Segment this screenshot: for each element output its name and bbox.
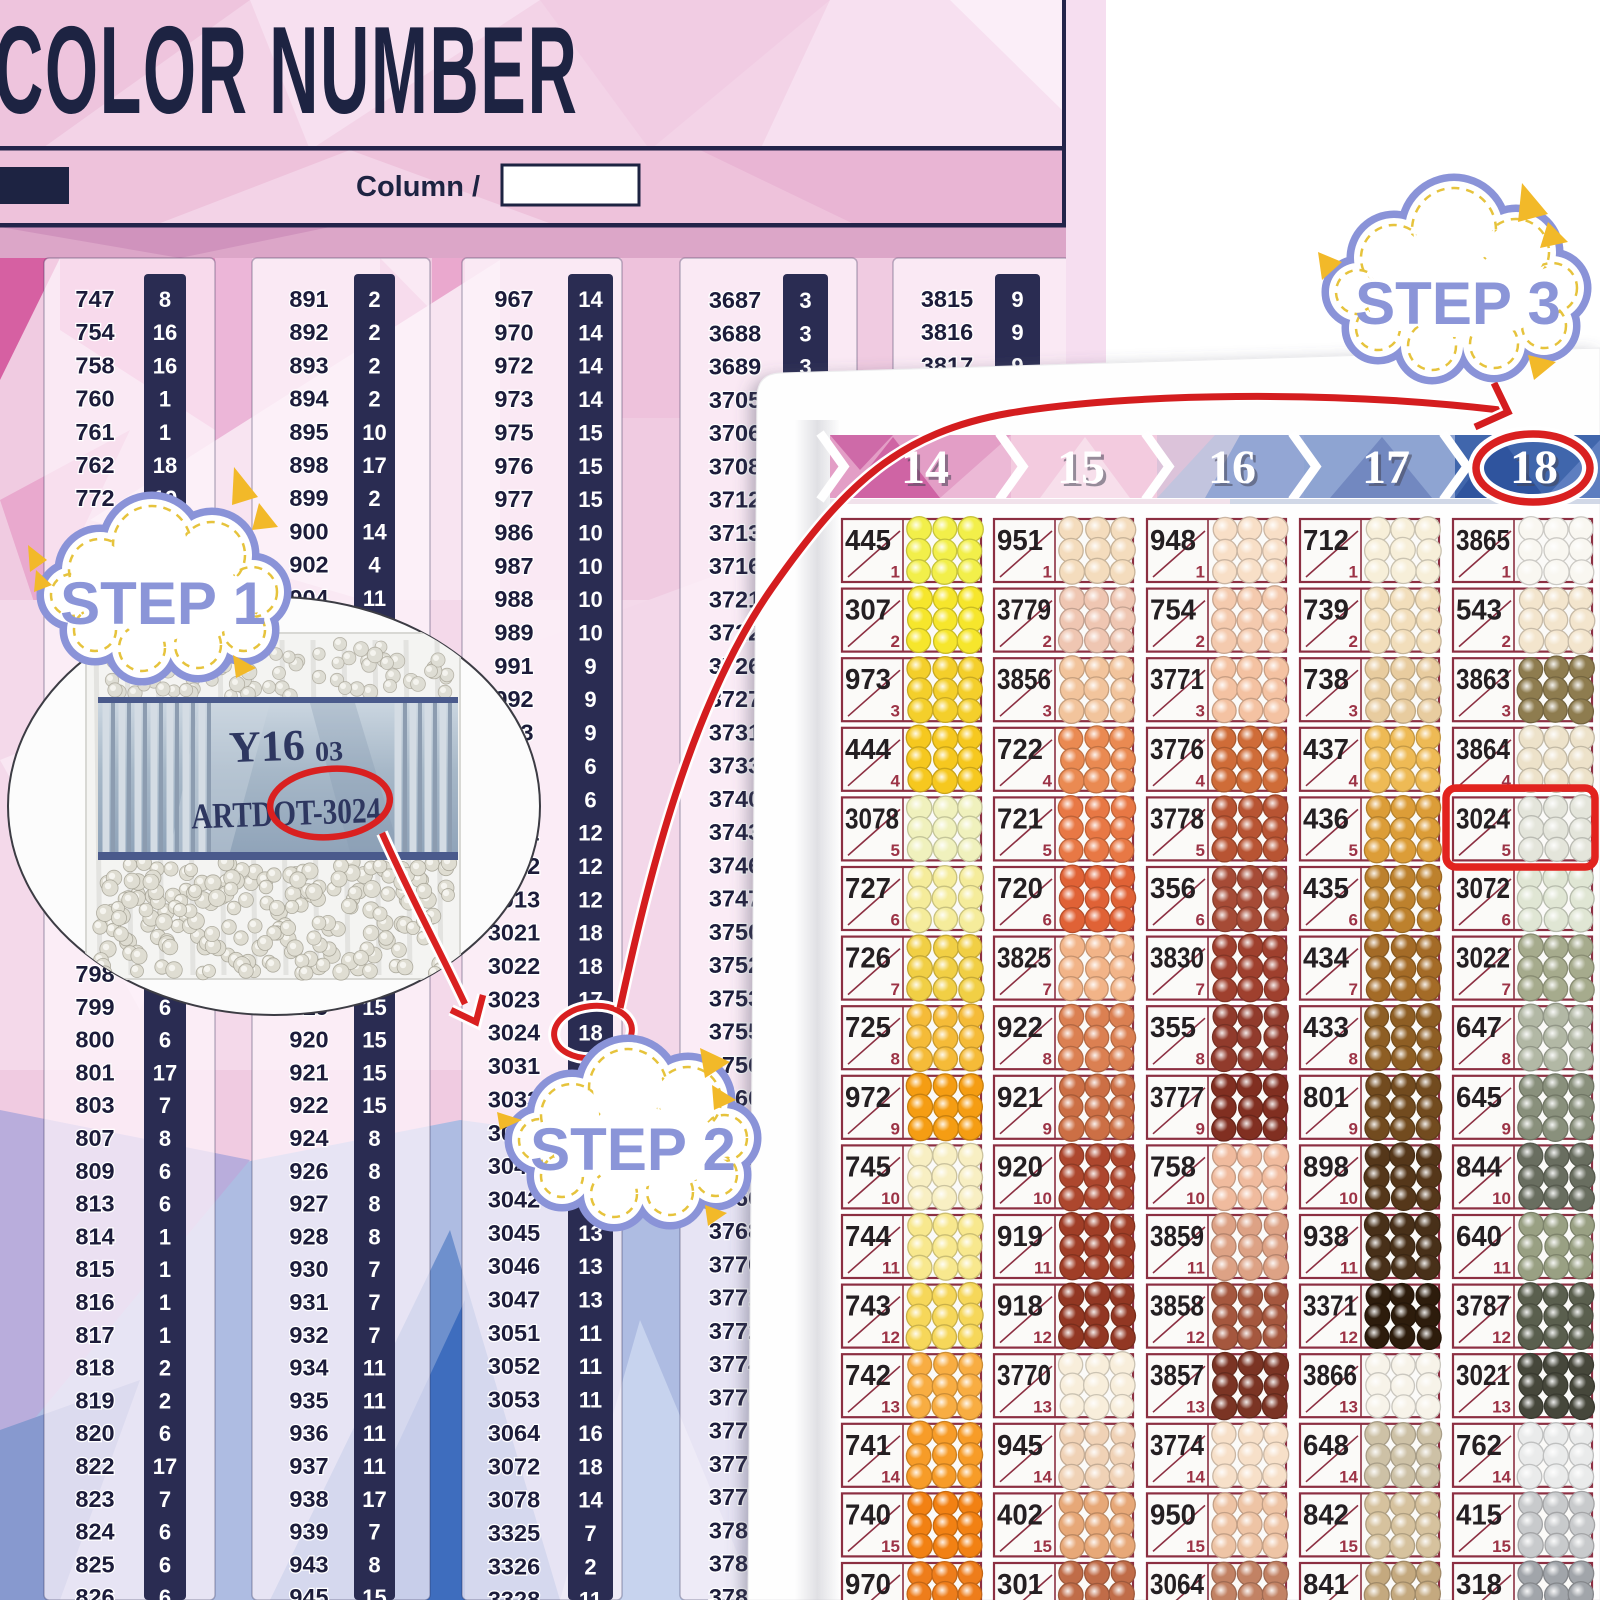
svg-text:17: 17 xyxy=(153,1060,177,1085)
svg-text:819: 819 xyxy=(75,1387,114,1413)
svg-text:18: 18 xyxy=(578,954,602,979)
svg-text:3776: 3776 xyxy=(1150,734,1204,766)
svg-text:2: 2 xyxy=(1196,632,1205,651)
svg-text:822: 822 xyxy=(75,1453,114,1479)
svg-text:6: 6 xyxy=(1502,911,1511,930)
svg-text:2: 2 xyxy=(159,1356,171,1381)
svg-text:800: 800 xyxy=(75,1027,114,1053)
svg-text:841: 841 xyxy=(1303,1569,1349,1600)
svg-text:647: 647 xyxy=(1456,1012,1502,1044)
svg-text:772: 772 xyxy=(75,485,114,511)
svg-text:814: 814 xyxy=(75,1223,114,1249)
svg-text:14: 14 xyxy=(578,354,603,379)
svg-text:3078: 3078 xyxy=(488,1487,540,1513)
svg-text:927: 927 xyxy=(289,1191,328,1217)
svg-text:437: 437 xyxy=(1303,734,1349,766)
svg-text:3771: 3771 xyxy=(1150,664,1204,696)
svg-text:3325: 3325 xyxy=(488,1520,540,1546)
svg-text:817: 817 xyxy=(75,1322,114,1348)
svg-text:3777: 3777 xyxy=(1150,1082,1204,1114)
svg-text:9: 9 xyxy=(584,721,596,746)
svg-text:816: 816 xyxy=(75,1289,114,1315)
svg-text:17: 17 xyxy=(153,1454,177,1479)
svg-text:892: 892 xyxy=(289,319,328,345)
svg-text:9: 9 xyxy=(1011,287,1023,312)
svg-text:6: 6 xyxy=(159,1552,171,1577)
svg-text:3: 3 xyxy=(1196,702,1205,721)
svg-text:3816: 3816 xyxy=(921,319,973,345)
svg-text:14: 14 xyxy=(578,387,603,412)
svg-text:2: 2 xyxy=(1502,632,1511,651)
svg-text:919: 919 xyxy=(997,1221,1043,1253)
svg-text:3022: 3022 xyxy=(1456,943,1510,975)
svg-text:9: 9 xyxy=(584,654,596,679)
svg-text:18: 18 xyxy=(578,921,602,946)
svg-text:6: 6 xyxy=(159,1192,171,1217)
svg-text:945: 945 xyxy=(997,1430,1043,1462)
svg-text:3740: 3740 xyxy=(709,786,761,812)
svg-text:970: 970 xyxy=(494,319,533,345)
svg-text:3689: 3689 xyxy=(709,354,761,380)
svg-text:3064: 3064 xyxy=(488,1420,540,1446)
svg-text:14: 14 xyxy=(881,1467,900,1486)
svg-text:STEP 2: STEP 2 xyxy=(530,1116,736,1183)
svg-text:928: 928 xyxy=(289,1223,328,1249)
svg-text:14: 14 xyxy=(578,1488,603,1513)
svg-text:3787: 3787 xyxy=(1456,1291,1510,1323)
svg-text:6: 6 xyxy=(584,754,596,779)
svg-text:6: 6 xyxy=(159,1028,171,1053)
svg-text:972: 972 xyxy=(845,1082,891,1114)
svg-text:826: 826 xyxy=(75,1584,114,1600)
svg-text:4: 4 xyxy=(1349,771,1359,790)
svg-text:743: 743 xyxy=(845,1291,891,1323)
svg-text:5: 5 xyxy=(891,841,900,860)
svg-text:3064: 3064 xyxy=(1150,1569,1204,1600)
svg-text:15: 15 xyxy=(578,454,602,479)
svg-text:10: 10 xyxy=(1339,1189,1358,1208)
svg-text:7: 7 xyxy=(368,1257,380,1282)
svg-text:3733: 3733 xyxy=(709,753,761,779)
svg-text:9: 9 xyxy=(891,1119,900,1138)
svg-text:Column /: Column / xyxy=(356,171,480,203)
svg-text:948: 948 xyxy=(1150,525,1196,557)
svg-text:823: 823 xyxy=(75,1486,114,1512)
svg-text:6: 6 xyxy=(159,1520,171,1545)
svg-text:3024: 3024 xyxy=(488,1020,540,1046)
svg-text:3371: 3371 xyxy=(1303,1291,1357,1323)
svg-text:3: 3 xyxy=(891,702,900,721)
svg-text:11: 11 xyxy=(1493,1259,1511,1278)
svg-text:3857: 3857 xyxy=(1150,1360,1204,1392)
svg-text:722: 722 xyxy=(997,734,1043,766)
svg-text:8: 8 xyxy=(368,1126,380,1151)
svg-text:726: 726 xyxy=(845,943,891,975)
svg-text:825: 825 xyxy=(75,1551,114,1577)
svg-text:3706: 3706 xyxy=(709,420,761,446)
svg-text:307: 307 xyxy=(845,595,891,627)
svg-text:3859: 3859 xyxy=(1150,1221,1204,1253)
svg-text:6: 6 xyxy=(584,787,596,812)
svg-text:813: 813 xyxy=(75,1191,114,1217)
svg-text:970: 970 xyxy=(845,1569,891,1600)
svg-text:807: 807 xyxy=(75,1125,114,1151)
svg-text:9: 9 xyxy=(584,687,596,712)
svg-text:938: 938 xyxy=(289,1486,328,1512)
svg-text:18: 18 xyxy=(153,453,177,478)
svg-text:1: 1 xyxy=(1196,563,1205,582)
svg-text:744: 744 xyxy=(845,1221,891,1253)
svg-text:18: 18 xyxy=(578,1021,602,1046)
svg-text:951: 951 xyxy=(997,525,1043,557)
svg-text:3708: 3708 xyxy=(709,453,761,479)
svg-text:301: 301 xyxy=(997,1569,1043,1600)
svg-text:1: 1 xyxy=(891,563,900,582)
svg-text:898: 898 xyxy=(289,452,328,478)
svg-text:3866: 3866 xyxy=(1303,1360,1357,1392)
svg-text:1: 1 xyxy=(159,420,171,445)
svg-text:899: 899 xyxy=(289,485,328,511)
svg-text:6: 6 xyxy=(159,1421,171,1446)
svg-text:924: 924 xyxy=(289,1125,328,1151)
svg-text:747: 747 xyxy=(75,286,114,312)
svg-text:5: 5 xyxy=(1043,841,1052,860)
svg-text:6: 6 xyxy=(159,1585,171,1600)
svg-text:6: 6 xyxy=(891,911,900,930)
svg-text:14: 14 xyxy=(362,519,387,544)
svg-text:3705: 3705 xyxy=(709,387,761,413)
svg-text:3053: 3053 xyxy=(488,1387,540,1413)
svg-text:14: 14 xyxy=(1186,1467,1205,1486)
svg-text:15: 15 xyxy=(362,1028,386,1053)
svg-text:16: 16 xyxy=(578,1421,602,1446)
svg-text:972: 972 xyxy=(494,353,533,379)
svg-text:3858: 3858 xyxy=(1150,1291,1204,1323)
svg-text:721: 721 xyxy=(997,803,1043,835)
svg-text:725: 725 xyxy=(845,1012,891,1044)
svg-text:2: 2 xyxy=(1349,632,1358,651)
svg-text:3: 3 xyxy=(1502,702,1511,721)
svg-text:13: 13 xyxy=(1492,1398,1511,1417)
svg-text:11: 11 xyxy=(579,1321,602,1346)
svg-text:15: 15 xyxy=(578,487,602,512)
svg-text:2: 2 xyxy=(891,632,900,651)
svg-text:973: 973 xyxy=(845,664,891,696)
svg-text:893: 893 xyxy=(289,352,328,378)
svg-text:3716: 3716 xyxy=(709,553,761,579)
svg-text:720: 720 xyxy=(997,873,1043,905)
svg-text:13: 13 xyxy=(578,1254,602,1279)
svg-text:742: 742 xyxy=(845,1360,891,1392)
svg-text:760: 760 xyxy=(75,386,114,412)
svg-text:9: 9 xyxy=(1043,1119,1052,1138)
svg-text:8: 8 xyxy=(891,1050,900,1069)
svg-text:931: 931 xyxy=(289,1289,328,1315)
svg-text:12: 12 xyxy=(1339,1328,1358,1347)
svg-text:14: 14 xyxy=(1339,1467,1358,1486)
svg-text:3: 3 xyxy=(799,288,811,313)
svg-text:18: 18 xyxy=(578,1454,602,1479)
svg-text:3770: 3770 xyxy=(997,1360,1051,1392)
svg-text:12: 12 xyxy=(1492,1328,1511,1347)
svg-text:8: 8 xyxy=(368,1192,380,1217)
svg-text:10: 10 xyxy=(578,554,602,579)
svg-text:356: 356 xyxy=(1150,873,1196,905)
svg-text:976: 976 xyxy=(494,453,533,479)
svg-text:844: 844 xyxy=(1456,1151,1502,1183)
svg-text:3: 3 xyxy=(1043,702,1052,721)
svg-text:14: 14 xyxy=(578,320,603,345)
svg-text:15: 15 xyxy=(1339,1537,1358,1556)
svg-text:820: 820 xyxy=(75,1420,114,1446)
svg-text:926: 926 xyxy=(289,1158,328,1184)
svg-text:939: 939 xyxy=(289,1519,328,1545)
svg-text:739: 739 xyxy=(1303,595,1349,627)
svg-text:9: 9 xyxy=(1349,1119,1358,1138)
svg-text:973: 973 xyxy=(494,386,533,412)
svg-text:5: 5 xyxy=(1196,841,1205,860)
svg-text:640: 640 xyxy=(1456,1221,1502,1253)
svg-text:9: 9 xyxy=(1196,1119,1205,1138)
svg-text:824: 824 xyxy=(75,1519,114,1545)
svg-text:648: 648 xyxy=(1303,1430,1349,1462)
svg-text:3021: 3021 xyxy=(1456,1360,1510,1392)
svg-text:842: 842 xyxy=(1303,1499,1349,1531)
svg-text:818: 818 xyxy=(75,1355,114,1381)
svg-text:930: 930 xyxy=(289,1256,328,1282)
svg-text:6: 6 xyxy=(1043,911,1052,930)
svg-text:1: 1 xyxy=(159,387,171,412)
svg-text:3052: 3052 xyxy=(488,1353,540,1379)
svg-text:11: 11 xyxy=(579,1588,602,1600)
svg-text:921: 921 xyxy=(289,1059,328,1085)
svg-text:801: 801 xyxy=(75,1059,114,1085)
svg-text:16: 16 xyxy=(153,320,177,345)
svg-text:3688: 3688 xyxy=(709,320,761,346)
svg-text:989: 989 xyxy=(494,620,533,646)
svg-text:7: 7 xyxy=(368,1290,380,1315)
svg-text:967: 967 xyxy=(494,286,533,312)
svg-text:741: 741 xyxy=(845,1430,891,1462)
svg-text:934: 934 xyxy=(289,1355,328,1381)
svg-text:3825: 3825 xyxy=(997,943,1051,975)
svg-text:712: 712 xyxy=(1303,525,1349,557)
svg-text:2: 2 xyxy=(1043,632,1052,651)
svg-text:762: 762 xyxy=(75,452,114,478)
svg-text:14: 14 xyxy=(1492,1467,1511,1486)
svg-text:12: 12 xyxy=(578,854,602,879)
svg-text:986: 986 xyxy=(494,519,533,545)
svg-text:10: 10 xyxy=(362,420,386,445)
svg-text:8: 8 xyxy=(159,1126,171,1151)
svg-text:03: 03 xyxy=(315,736,344,768)
svg-text:745: 745 xyxy=(845,1151,891,1183)
svg-text:7: 7 xyxy=(584,1521,596,1546)
svg-text:898: 898 xyxy=(1303,1151,1349,1183)
svg-text:3051: 3051 xyxy=(488,1320,540,1346)
svg-text:12: 12 xyxy=(881,1328,900,1347)
svg-text:3815: 3815 xyxy=(921,286,973,312)
svg-text:11: 11 xyxy=(1034,1259,1052,1278)
svg-text:15: 15 xyxy=(362,1585,386,1600)
svg-text:3328: 3328 xyxy=(488,1587,540,1600)
svg-text:543: 543 xyxy=(1456,595,1502,627)
svg-text:11: 11 xyxy=(882,1259,900,1278)
svg-text:13: 13 xyxy=(881,1398,900,1417)
svg-text:10: 10 xyxy=(1492,1189,1511,1208)
svg-text:8: 8 xyxy=(368,1552,380,1577)
svg-text:8: 8 xyxy=(159,287,171,312)
svg-text:895: 895 xyxy=(289,419,328,445)
svg-text:10: 10 xyxy=(1186,1189,1205,1208)
svg-text:13: 13 xyxy=(1186,1398,1205,1417)
svg-text:17: 17 xyxy=(362,1487,386,1512)
svg-text:11: 11 xyxy=(1187,1259,1205,1278)
svg-text:3326: 3326 xyxy=(488,1553,540,1579)
svg-text:7: 7 xyxy=(1349,980,1358,999)
svg-text:3047: 3047 xyxy=(488,1287,540,1313)
svg-text:3779: 3779 xyxy=(997,595,1051,627)
svg-text:434: 434 xyxy=(1303,943,1349,975)
svg-text:754: 754 xyxy=(75,319,114,345)
svg-text:3078: 3078 xyxy=(845,803,899,835)
svg-text:18: 18 xyxy=(1510,441,1558,494)
svg-text:436: 436 xyxy=(1303,803,1349,835)
svg-text:815: 815 xyxy=(75,1256,114,1282)
svg-text:7: 7 xyxy=(368,1520,380,1545)
svg-text:3072: 3072 xyxy=(1456,873,1510,905)
svg-text:977: 977 xyxy=(494,486,533,512)
svg-text:4: 4 xyxy=(1196,771,1206,790)
svg-text:758: 758 xyxy=(75,352,114,378)
svg-text:415: 415 xyxy=(1456,1499,1502,1531)
svg-text:11: 11 xyxy=(1340,1259,1358,1278)
svg-text:Y16: Y16 xyxy=(228,720,305,772)
svg-text:318: 318 xyxy=(1456,1569,1502,1600)
svg-text:7: 7 xyxy=(159,1487,171,1512)
svg-text:10: 10 xyxy=(578,520,602,545)
svg-text:3022: 3022 xyxy=(488,953,540,979)
svg-text:918: 918 xyxy=(997,1291,1043,1323)
svg-text:435: 435 xyxy=(1303,873,1349,905)
svg-text:COLOR NUMBER: COLOR NUMBER xyxy=(0,2,578,141)
svg-text:13: 13 xyxy=(1339,1398,1358,1417)
svg-text:4: 4 xyxy=(891,771,901,790)
svg-text:7: 7 xyxy=(1502,980,1511,999)
svg-text:1: 1 xyxy=(159,1224,171,1249)
svg-text:936: 936 xyxy=(289,1420,328,1446)
svg-text:3072: 3072 xyxy=(488,1453,540,1479)
svg-text:8: 8 xyxy=(1502,1050,1511,1069)
svg-text:900: 900 xyxy=(289,518,328,544)
svg-text:15: 15 xyxy=(881,1537,900,1556)
svg-text:975: 975 xyxy=(494,419,533,445)
svg-text:15: 15 xyxy=(1492,1537,1511,1556)
svg-text:11: 11 xyxy=(579,1354,602,1379)
svg-text:3046: 3046 xyxy=(488,1253,540,1279)
svg-text:6: 6 xyxy=(159,1159,171,1184)
svg-text:355: 355 xyxy=(1150,1012,1196,1044)
svg-text:950: 950 xyxy=(1150,1499,1196,1531)
svg-text:445: 445 xyxy=(845,525,891,557)
svg-text:803: 803 xyxy=(75,1092,114,1118)
svg-text:15: 15 xyxy=(1033,1537,1052,1556)
svg-text:3: 3 xyxy=(1349,702,1358,721)
svg-text:8: 8 xyxy=(1043,1050,1052,1069)
svg-text:3774: 3774 xyxy=(1150,1430,1204,1462)
svg-text:6: 6 xyxy=(1196,911,1205,930)
svg-text:3023: 3023 xyxy=(488,986,540,1012)
svg-text:809: 809 xyxy=(75,1158,114,1184)
svg-text:645: 645 xyxy=(1456,1082,1502,1114)
svg-text:11: 11 xyxy=(363,1421,386,1446)
svg-text:991: 991 xyxy=(494,653,533,679)
svg-text:5: 5 xyxy=(1349,841,1358,860)
svg-text:938: 938 xyxy=(1303,1221,1349,1253)
svg-text:7: 7 xyxy=(159,1093,171,1118)
svg-text:3830: 3830 xyxy=(1150,943,1204,975)
svg-text:16: 16 xyxy=(1208,441,1256,494)
svg-text:12: 12 xyxy=(578,887,602,912)
svg-text:12: 12 xyxy=(1186,1328,1205,1347)
svg-text:3856: 3856 xyxy=(997,664,1051,696)
svg-text:11: 11 xyxy=(363,1454,386,1479)
svg-text:14: 14 xyxy=(1033,1467,1052,1486)
svg-text:11: 11 xyxy=(579,1388,602,1413)
svg-text:3863: 3863 xyxy=(1456,664,1510,696)
svg-text:2: 2 xyxy=(368,320,380,345)
svg-text:937: 937 xyxy=(289,1453,328,1479)
svg-text:1: 1 xyxy=(159,1323,171,1348)
svg-text:1: 1 xyxy=(1349,563,1358,582)
svg-text:758: 758 xyxy=(1150,1151,1196,1183)
svg-text:16: 16 xyxy=(153,353,177,378)
svg-text:9: 9 xyxy=(1011,320,1023,345)
svg-text:932: 932 xyxy=(289,1322,328,1348)
svg-text:17: 17 xyxy=(362,453,386,478)
svg-text:15: 15 xyxy=(362,1093,386,1118)
svg-text:945: 945 xyxy=(289,1584,328,1600)
svg-text:891: 891 xyxy=(289,286,328,312)
svg-text:2: 2 xyxy=(368,353,380,378)
svg-text:13: 13 xyxy=(578,1288,602,1313)
svg-text:STEP 1: STEP 1 xyxy=(60,570,266,637)
svg-text:8: 8 xyxy=(368,1224,380,1249)
svg-text:7: 7 xyxy=(891,980,900,999)
svg-text:8: 8 xyxy=(1349,1050,1358,1069)
svg-text:799: 799 xyxy=(75,994,114,1020)
svg-text:3713: 3713 xyxy=(709,520,761,546)
svg-text:1: 1 xyxy=(1043,563,1052,582)
svg-text:761: 761 xyxy=(75,419,114,445)
svg-text:10: 10 xyxy=(578,587,602,612)
svg-text:444: 444 xyxy=(845,734,891,766)
svg-text:943: 943 xyxy=(289,1551,328,1577)
svg-text:2: 2 xyxy=(584,1554,596,1579)
svg-text:3731: 3731 xyxy=(709,719,761,745)
svg-text:2: 2 xyxy=(368,287,380,312)
svg-text:762: 762 xyxy=(1456,1430,1502,1462)
svg-text:3865: 3865 xyxy=(1456,525,1510,557)
svg-text:3687: 3687 xyxy=(709,287,761,313)
svg-text:402: 402 xyxy=(997,1499,1043,1531)
svg-text:922: 922 xyxy=(997,1012,1043,1044)
svg-text:4: 4 xyxy=(368,553,381,578)
svg-text:902: 902 xyxy=(289,552,328,578)
svg-text:727: 727 xyxy=(845,873,891,905)
svg-text:15: 15 xyxy=(1057,441,1105,494)
svg-text:7: 7 xyxy=(1196,980,1205,999)
